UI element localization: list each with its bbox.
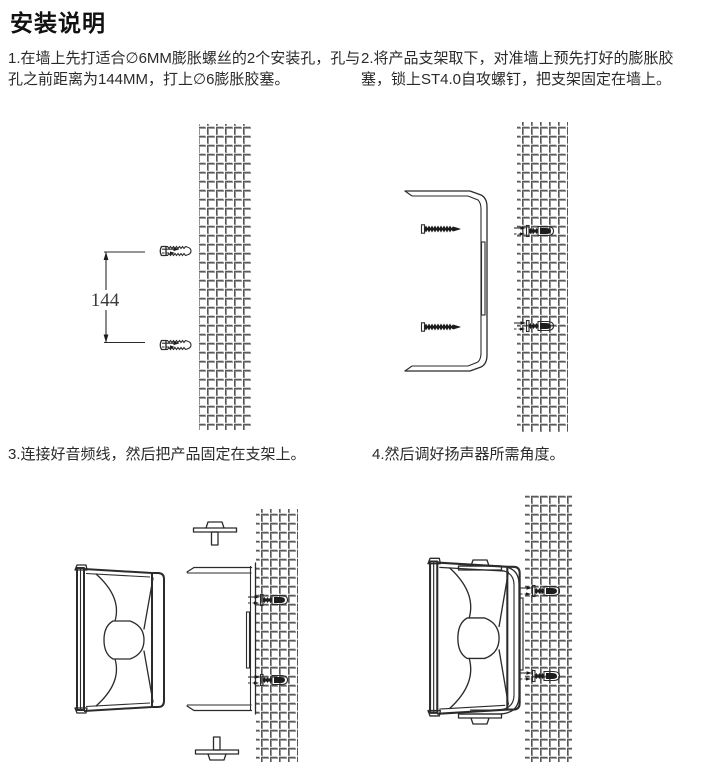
figure-step2 — [405, 122, 568, 432]
figure-step1: 144 — [91, 124, 251, 430]
mounting-bracket-icon — [405, 191, 487, 371]
expansion-anchor-icon — [160, 341, 191, 350]
figure-step3 — [75, 509, 298, 762]
wall-hatch — [517, 122, 568, 432]
dimension-line: 144 — [91, 252, 145, 343]
self-tapping-screw-icon — [422, 225, 461, 233]
thumb-knob-icon — [459, 714, 502, 724]
installation-instructions-page: 安装说明 1.在墙上先打适合∅6MM膨胀螺丝的2个安装孔，孔与孔之前距离为144… — [0, 0, 703, 762]
mounting-bracket-icon — [187, 563, 256, 714]
mounting-bracket-icon — [460, 566, 523, 714]
thumb-knob-icon — [194, 522, 237, 545]
horn-speaker-icon — [75, 565, 164, 713]
instruction-figures: 144 — [0, 0, 703, 762]
expansion-anchor-icon — [160, 247, 191, 256]
wall-hatch — [256, 509, 298, 762]
thumb-knob-icon — [196, 737, 239, 760]
figure-step4 — [428, 495, 572, 762]
wall-hatch — [199, 124, 251, 430]
self-tapping-screw-icon — [422, 323, 461, 331]
dimension-label: 144 — [91, 290, 120, 311]
horn-speaker-icon — [428, 558, 520, 716]
wall-hatch — [525, 495, 572, 762]
